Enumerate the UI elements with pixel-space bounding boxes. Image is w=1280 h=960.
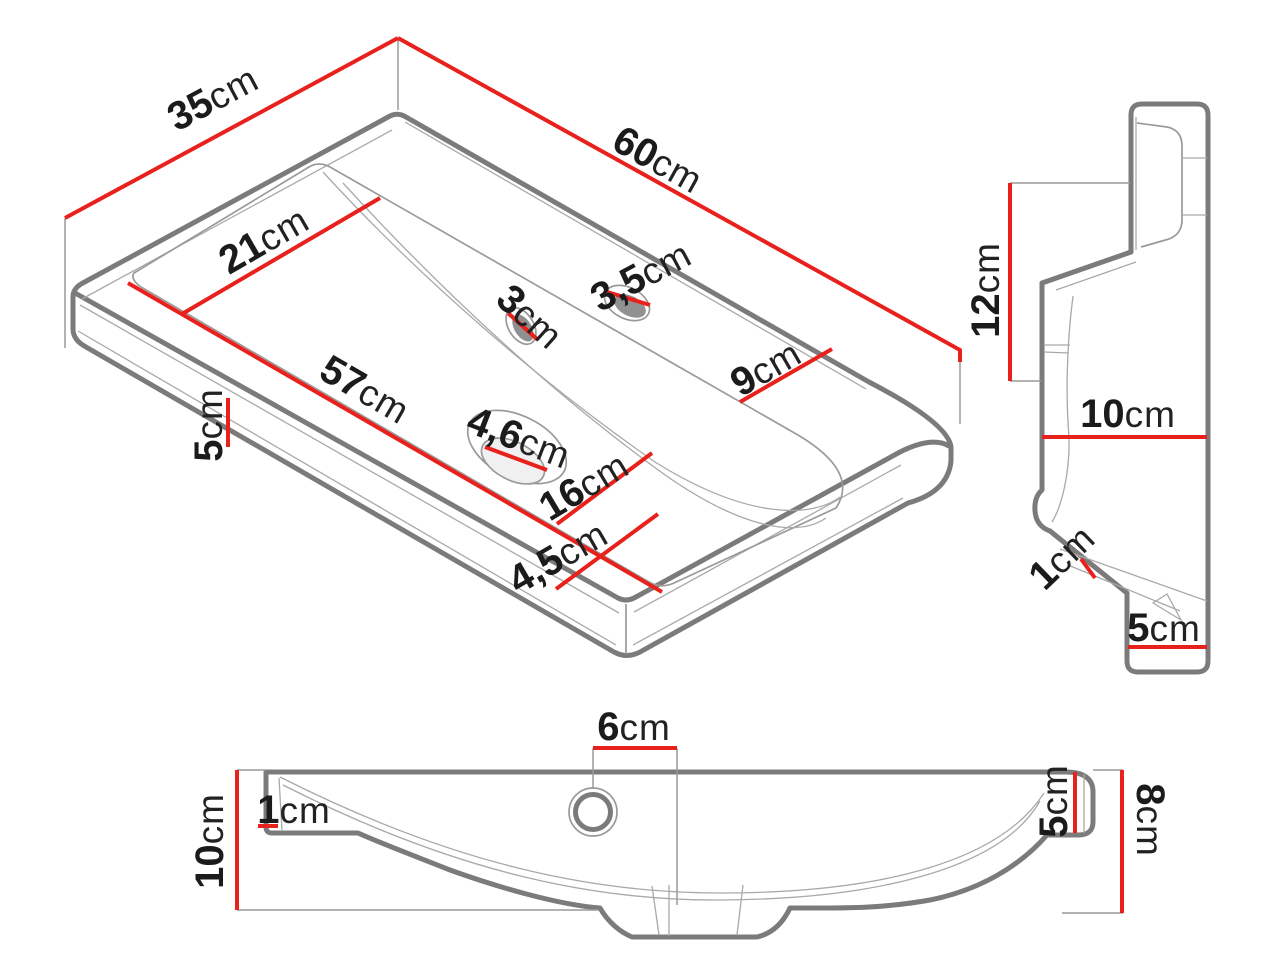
dim-label-10cm-side: 10cm [1080, 392, 1176, 436]
dim-label-6cm: 6cm [597, 705, 671, 749]
dim-label-60cm: 60cm [605, 118, 710, 203]
front-section-view: 6cm 1cm 10cm 5cm 8cm [188, 705, 1172, 937]
front-section-outline [266, 772, 1093, 937]
dim-label-10cm-front: 10cm [188, 793, 232, 889]
drawing-page: 35cm 60cm 21cm 3,5cm 3cm 9cm 57cm 5cm 4,… [0, 0, 1280, 960]
side-profile-view: 12cm 10cm 1cm 5cm [964, 104, 1208, 672]
dim-label-1cm-front: 1cm [257, 788, 331, 832]
dim-label-5cm-side: 5cm [1127, 606, 1201, 650]
isometric-view: 35cm 60cm 21cm 3,5cm 3cm 9cm 57cm 5cm 4,… [65, 38, 960, 656]
dim-label-5cm-front: 5cm [1032, 764, 1076, 838]
dim-label-5cm-iso: 5cm [187, 388, 231, 462]
dim-label-35cm: 35cm [160, 56, 265, 140]
technical-drawing-canvas: 35cm 60cm 21cm 3,5cm 3cm 9cm 57cm 5cm 4,… [0, 0, 1280, 960]
dim-label-8cm-front: 8cm [1128, 783, 1172, 857]
dim-label-12cm: 12cm [964, 242, 1008, 338]
